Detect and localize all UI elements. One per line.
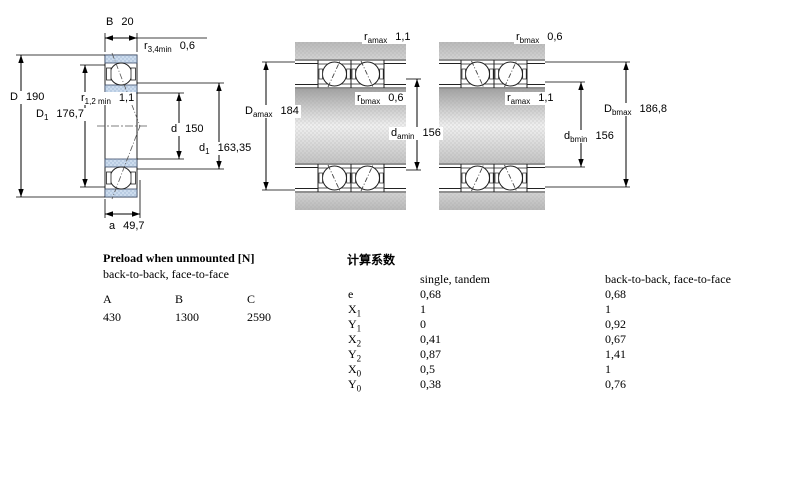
factors-col2-header: back-to-back, face-to-face <box>605 272 731 287</box>
factor-row-X0: X0 0,51 <box>345 362 685 377</box>
factors-title: 计算系数 <box>347 251 395 268</box>
preload-table: Preload when unmounted [N] back-to-back,… <box>103 249 383 339</box>
dim-label-d-amin: damin156 <box>389 127 443 140</box>
preload-col-A: A <box>103 292 112 307</box>
preload-value-C: 2590 <box>247 310 271 325</box>
dim-label-D-bmax: Dbmax186,8 <box>602 103 669 116</box>
dim-label-D1: D1176,7 <box>34 108 86 121</box>
preload-col-C: C <box>247 292 255 307</box>
factor-row-X2: X2 0,410,67 <box>345 332 685 347</box>
preload-col-B: B <box>175 292 183 307</box>
preload-value-B: 1300 <box>175 310 199 325</box>
factors-col1-header: single, tandem <box>420 272 490 287</box>
preload-title: Preload when unmounted [N] <box>103 251 254 266</box>
factor-row-Y1: Y1 00,92 <box>345 317 685 332</box>
dim-label-right-r-bmax: rbmax0,6 <box>514 31 565 44</box>
dim-label-mid-r-bmax: rbmax0,6 <box>355 92 406 105</box>
dim-label-a: a49,7 <box>107 220 147 233</box>
dim-label-D: D190 <box>8 91 46 104</box>
dim-label-right-r-amax: ramax1,1 <box>505 92 556 105</box>
dim-label-d-bmin: dbmin156 <box>562 130 616 143</box>
preload-subtitle: back-to-back, face-to-face <box>103 267 229 282</box>
dim-label-mid-r-amax: ramax1,1 <box>362 31 413 44</box>
pair-face-to-face-drawing <box>262 42 421 210</box>
bearing-datasheet-page: B20 r3,4min0,6 D190 D1176,7 r1,2 min1,1 … <box>0 0 800 500</box>
factor-row-Y0: Y0 0,380,76 <box>345 377 685 392</box>
factor-row-Y2: Y2 0,871,41 <box>345 347 685 362</box>
pair-back-to-back-drawing <box>439 42 630 210</box>
dim-label-r12min: r1,2 min1,1 <box>79 92 136 105</box>
dim-label-B: B20 <box>104 16 136 29</box>
factor-row-X1: X1 11 <box>345 302 685 317</box>
preload-value-A: 430 <box>103 310 121 325</box>
dim-label-D-amax: Damax184 <box>243 105 301 118</box>
factor-row-e: e 0,680,68 <box>345 287 685 302</box>
dim-label-r34min: r3,4min0,6 <box>142 40 197 53</box>
dim-label-d1: d1163,35 <box>197 142 253 155</box>
dim-label-d: d150 <box>169 123 205 136</box>
calculation-factors-table: 计算系数 single, tandem back-to-back, face-t… <box>345 249 745 399</box>
